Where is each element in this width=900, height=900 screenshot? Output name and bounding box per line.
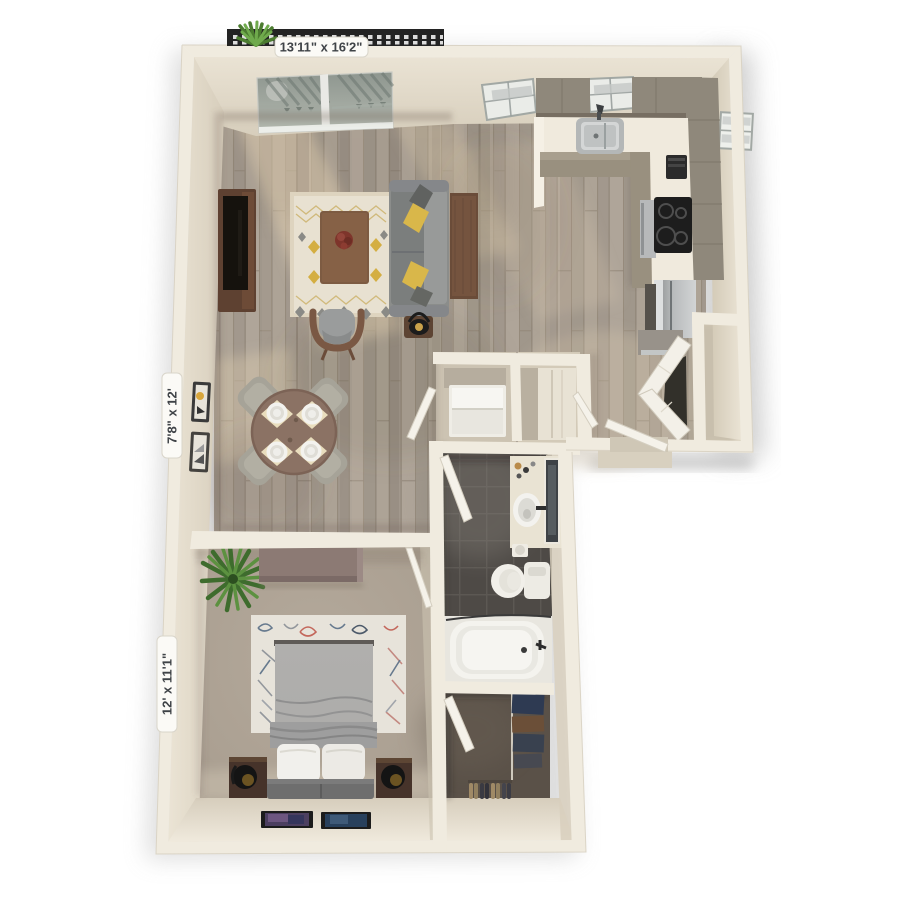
svg-text:12' x 11'1": 12' x 11'1" [160,653,175,715]
svg-text:13'11" x 16'2": 13'11" x 16'2" [280,40,363,55]
svg-text:7'8" x 12': 7'8" x 12' [165,388,180,444]
